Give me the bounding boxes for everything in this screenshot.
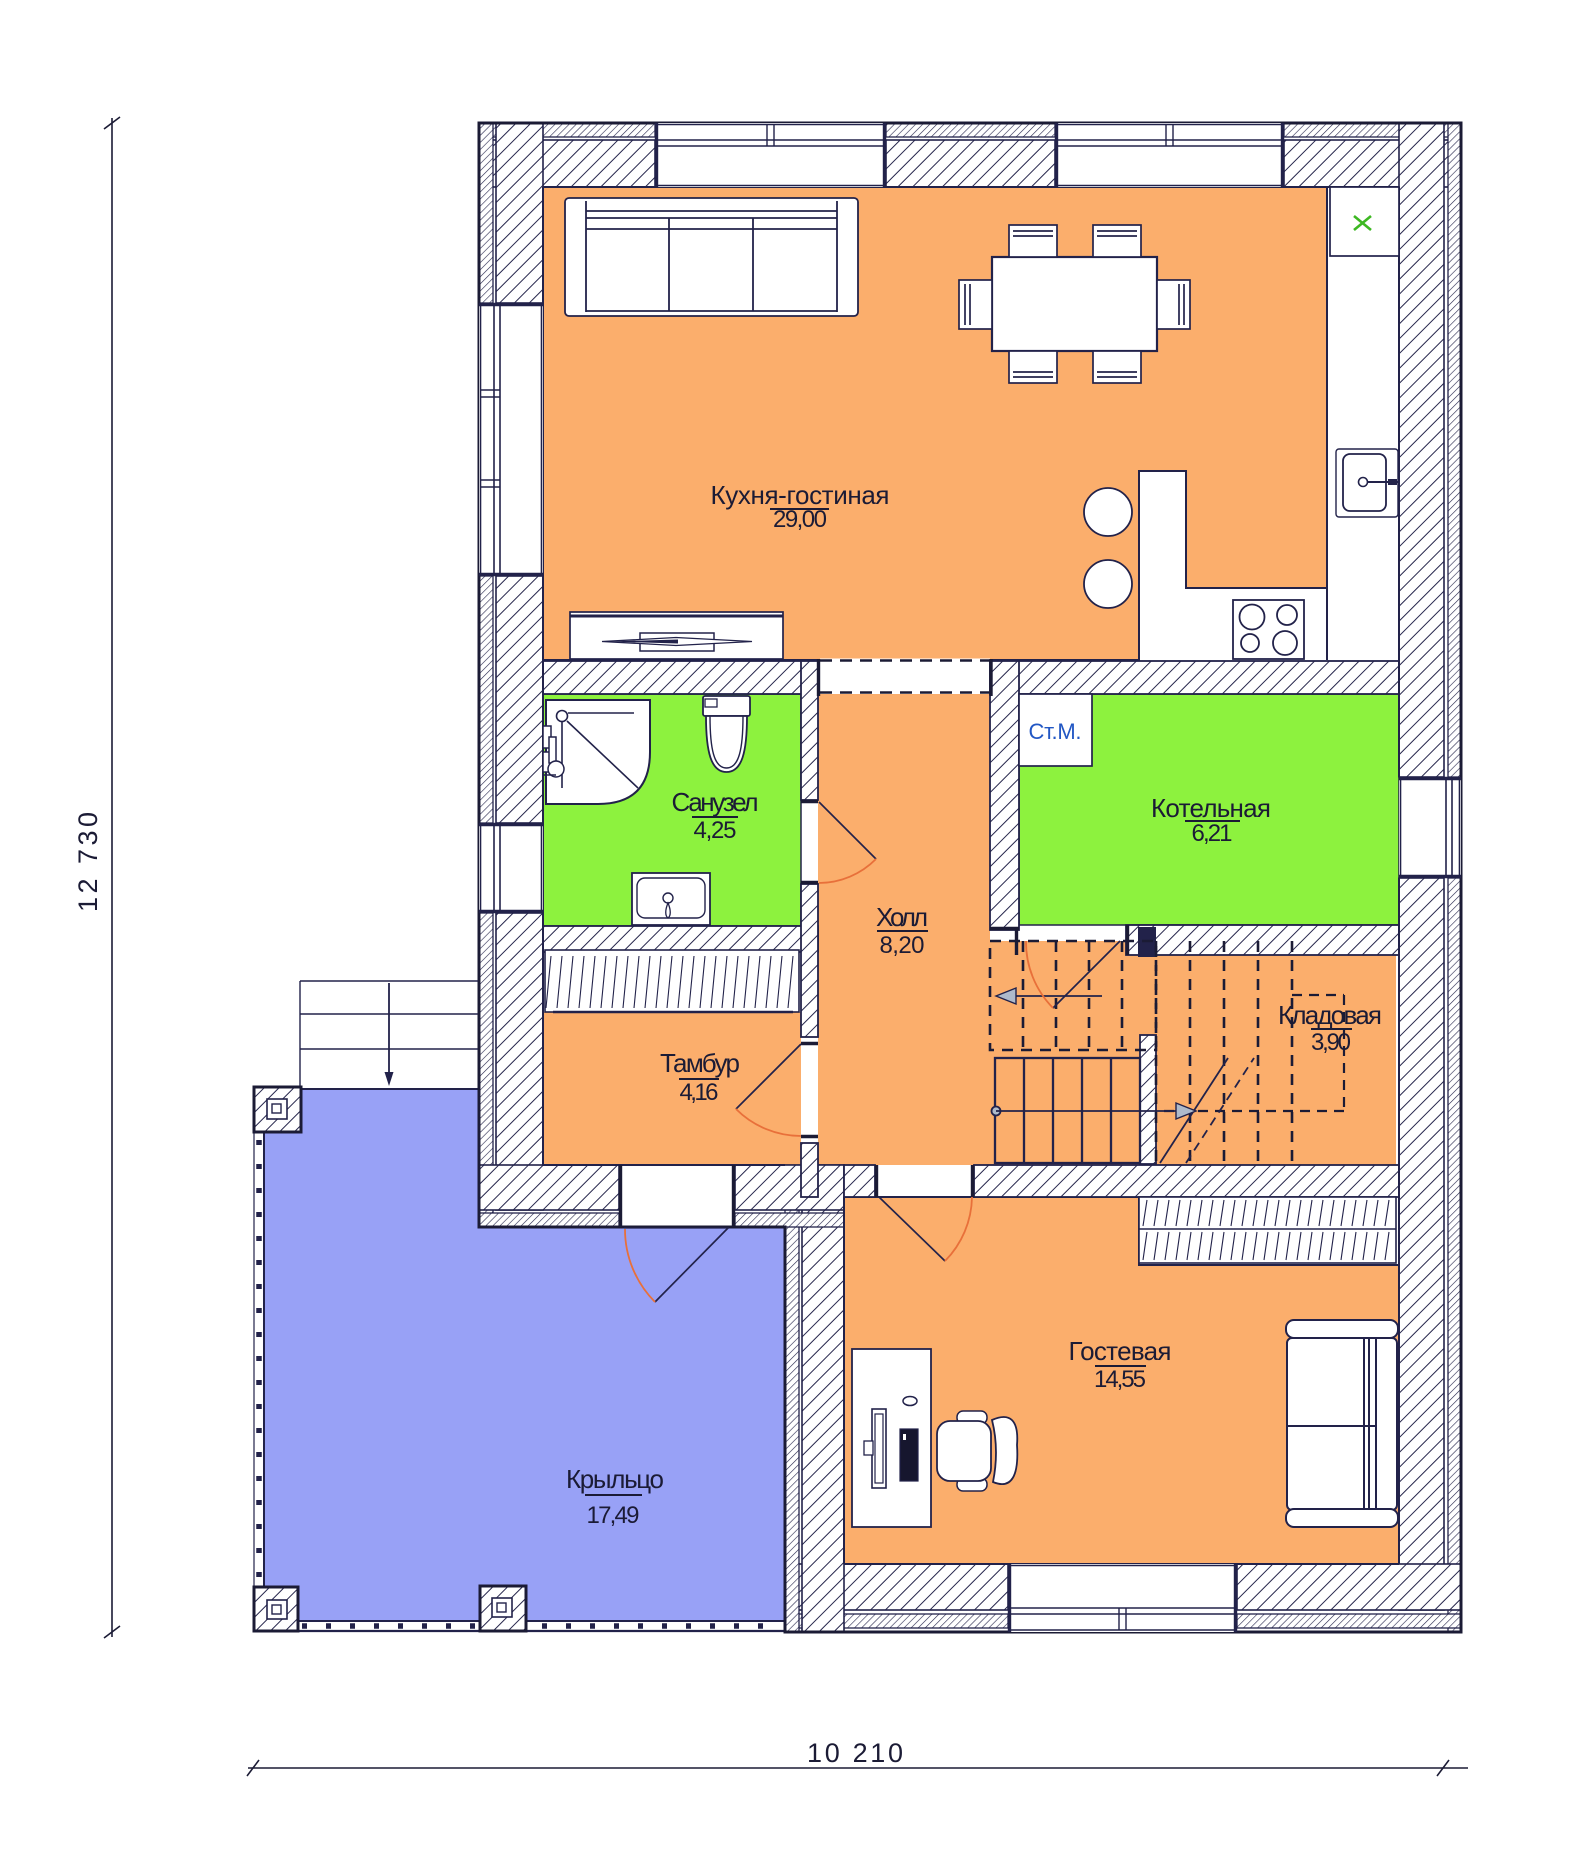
svg-text:17,49: 17,49 xyxy=(587,1502,640,1529)
svg-text:Котельная: Котельная xyxy=(1151,793,1271,823)
svg-text:10 210: 10 210 xyxy=(807,1738,903,1768)
svg-text:4,25: 4,25 xyxy=(694,817,737,844)
svg-text:12 730: 12 730 xyxy=(73,812,103,912)
svg-text:Крыльцо: Крыльцо xyxy=(566,1464,664,1494)
svg-text:4,16: 4,16 xyxy=(680,1079,719,1106)
svg-text:14,55: 14,55 xyxy=(1094,1366,1146,1393)
svg-text:6,21: 6,21 xyxy=(1192,820,1233,847)
svg-text:Санузел: Санузел xyxy=(672,787,759,817)
svg-text:Гостевая: Гостевая xyxy=(1069,1336,1172,1366)
svg-text:Холл: Холл xyxy=(876,902,928,932)
svg-text:Кладовая: Кладовая xyxy=(1278,1000,1382,1030)
svg-text:3,90: 3,90 xyxy=(1311,1029,1351,1056)
svg-text:Тамбур: Тамбур xyxy=(660,1048,740,1078)
svg-text:Ст.М.: Ст.М. xyxy=(1029,719,1082,744)
svg-text:8,20: 8,20 xyxy=(880,932,925,959)
svg-text:29,00: 29,00 xyxy=(773,506,827,533)
